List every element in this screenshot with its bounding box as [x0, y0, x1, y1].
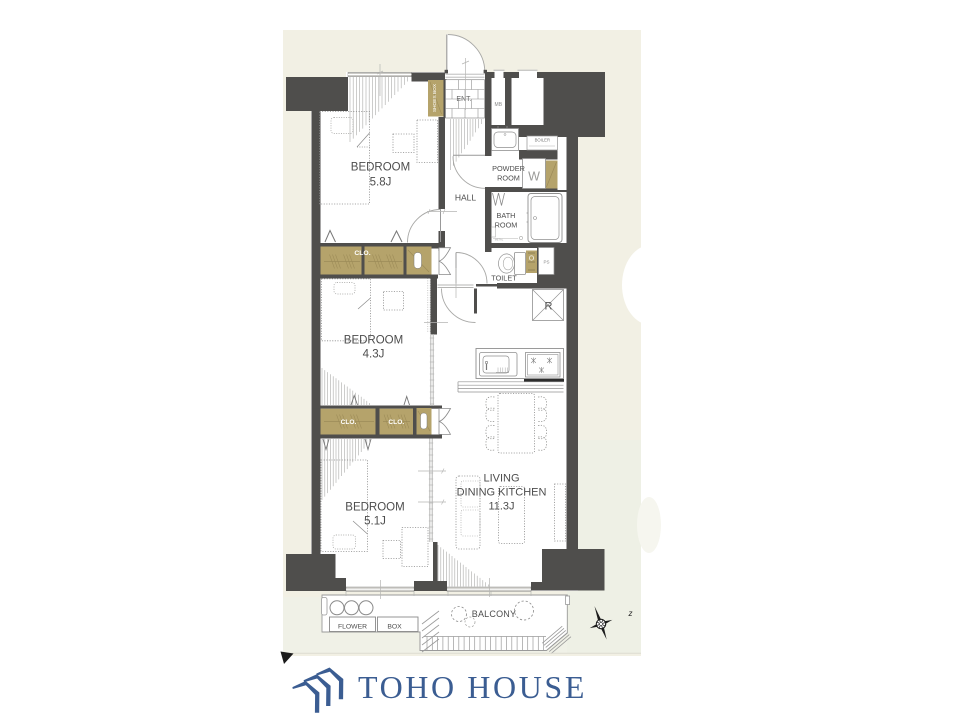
svg-text:BEDROOM: BEDROOM: [345, 502, 404, 514]
svg-text:ROOM: ROOM: [495, 221, 518, 230]
svg-text:R: R: [545, 301, 553, 313]
svg-text:ROOM: ROOM: [497, 174, 520, 183]
svg-text:z: z: [628, 609, 633, 618]
svg-text:PS: PS: [543, 260, 549, 265]
svg-text:BOILER: BOILER: [535, 138, 550, 143]
svg-text:5.8J: 5.8J: [370, 177, 392, 189]
svg-text:FLOWER: FLOWER: [338, 624, 367, 631]
svg-text:4.3J: 4.3J: [363, 349, 385, 361]
svg-text:CLO.: CLO.: [341, 419, 357, 426]
svg-text:CLO.: CLO.: [388, 419, 404, 426]
svg-text:LIVING: LIVING: [483, 473, 519, 485]
svg-text:BOX: BOX: [387, 624, 402, 631]
svg-text:ENT.: ENT.: [456, 96, 471, 103]
svg-text:5.1J: 5.1J: [364, 516, 386, 528]
svg-text:SHOES BOX: SHOES BOX: [432, 83, 438, 112]
svg-text:DINING KITCHEN: DINING KITCHEN: [457, 487, 547, 499]
svg-text:TOILET: TOILET: [491, 274, 517, 283]
svg-text:HALL: HALL: [455, 193, 477, 203]
svg-text:BEDROOM: BEDROOM: [344, 335, 403, 347]
svg-text:TOHO HOUSE: TOHO HOUSE: [358, 669, 587, 705]
svg-text:BEDROOM: BEDROOM: [351, 162, 410, 174]
svg-text:BATH: BATH: [497, 211, 516, 220]
svg-text:CLO.: CLO.: [354, 250, 370, 257]
svg-text:W: W: [528, 170, 540, 184]
svg-text:POWDER: POWDER: [492, 164, 525, 173]
svg-text:MB: MB: [495, 102, 503, 108]
svg-text:METAL: METAL: [495, 238, 504, 242]
svg-text:11.3J: 11.3J: [488, 501, 514, 513]
svg-text:BALCONY: BALCONY: [472, 609, 516, 619]
